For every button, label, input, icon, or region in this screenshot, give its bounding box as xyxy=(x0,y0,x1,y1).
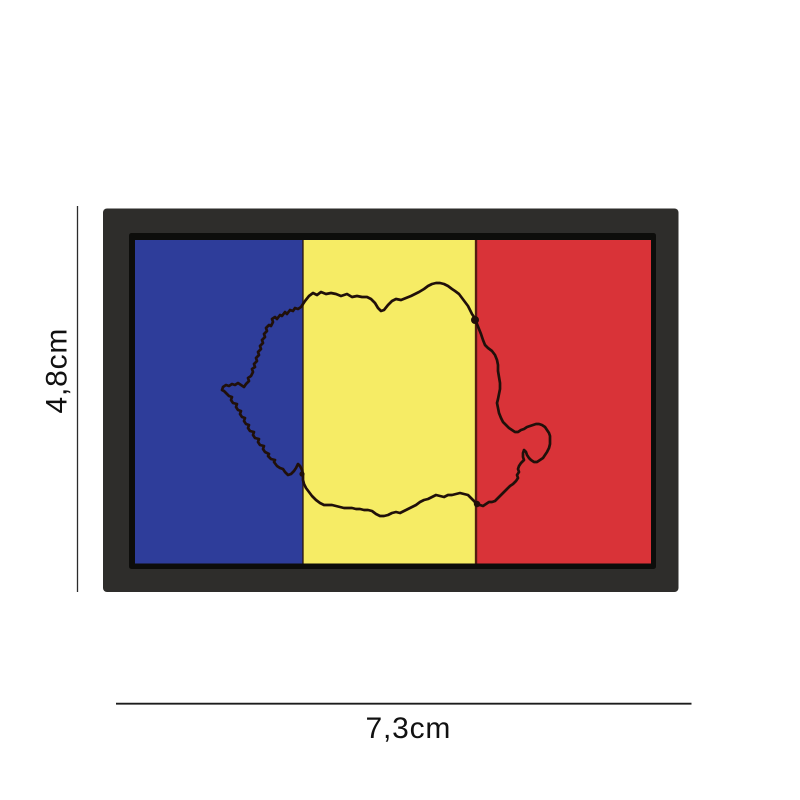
svg-text:4,8cm: 4,8cm xyxy=(41,328,74,414)
svg-text:7,3cm: 7,3cm xyxy=(366,712,452,745)
